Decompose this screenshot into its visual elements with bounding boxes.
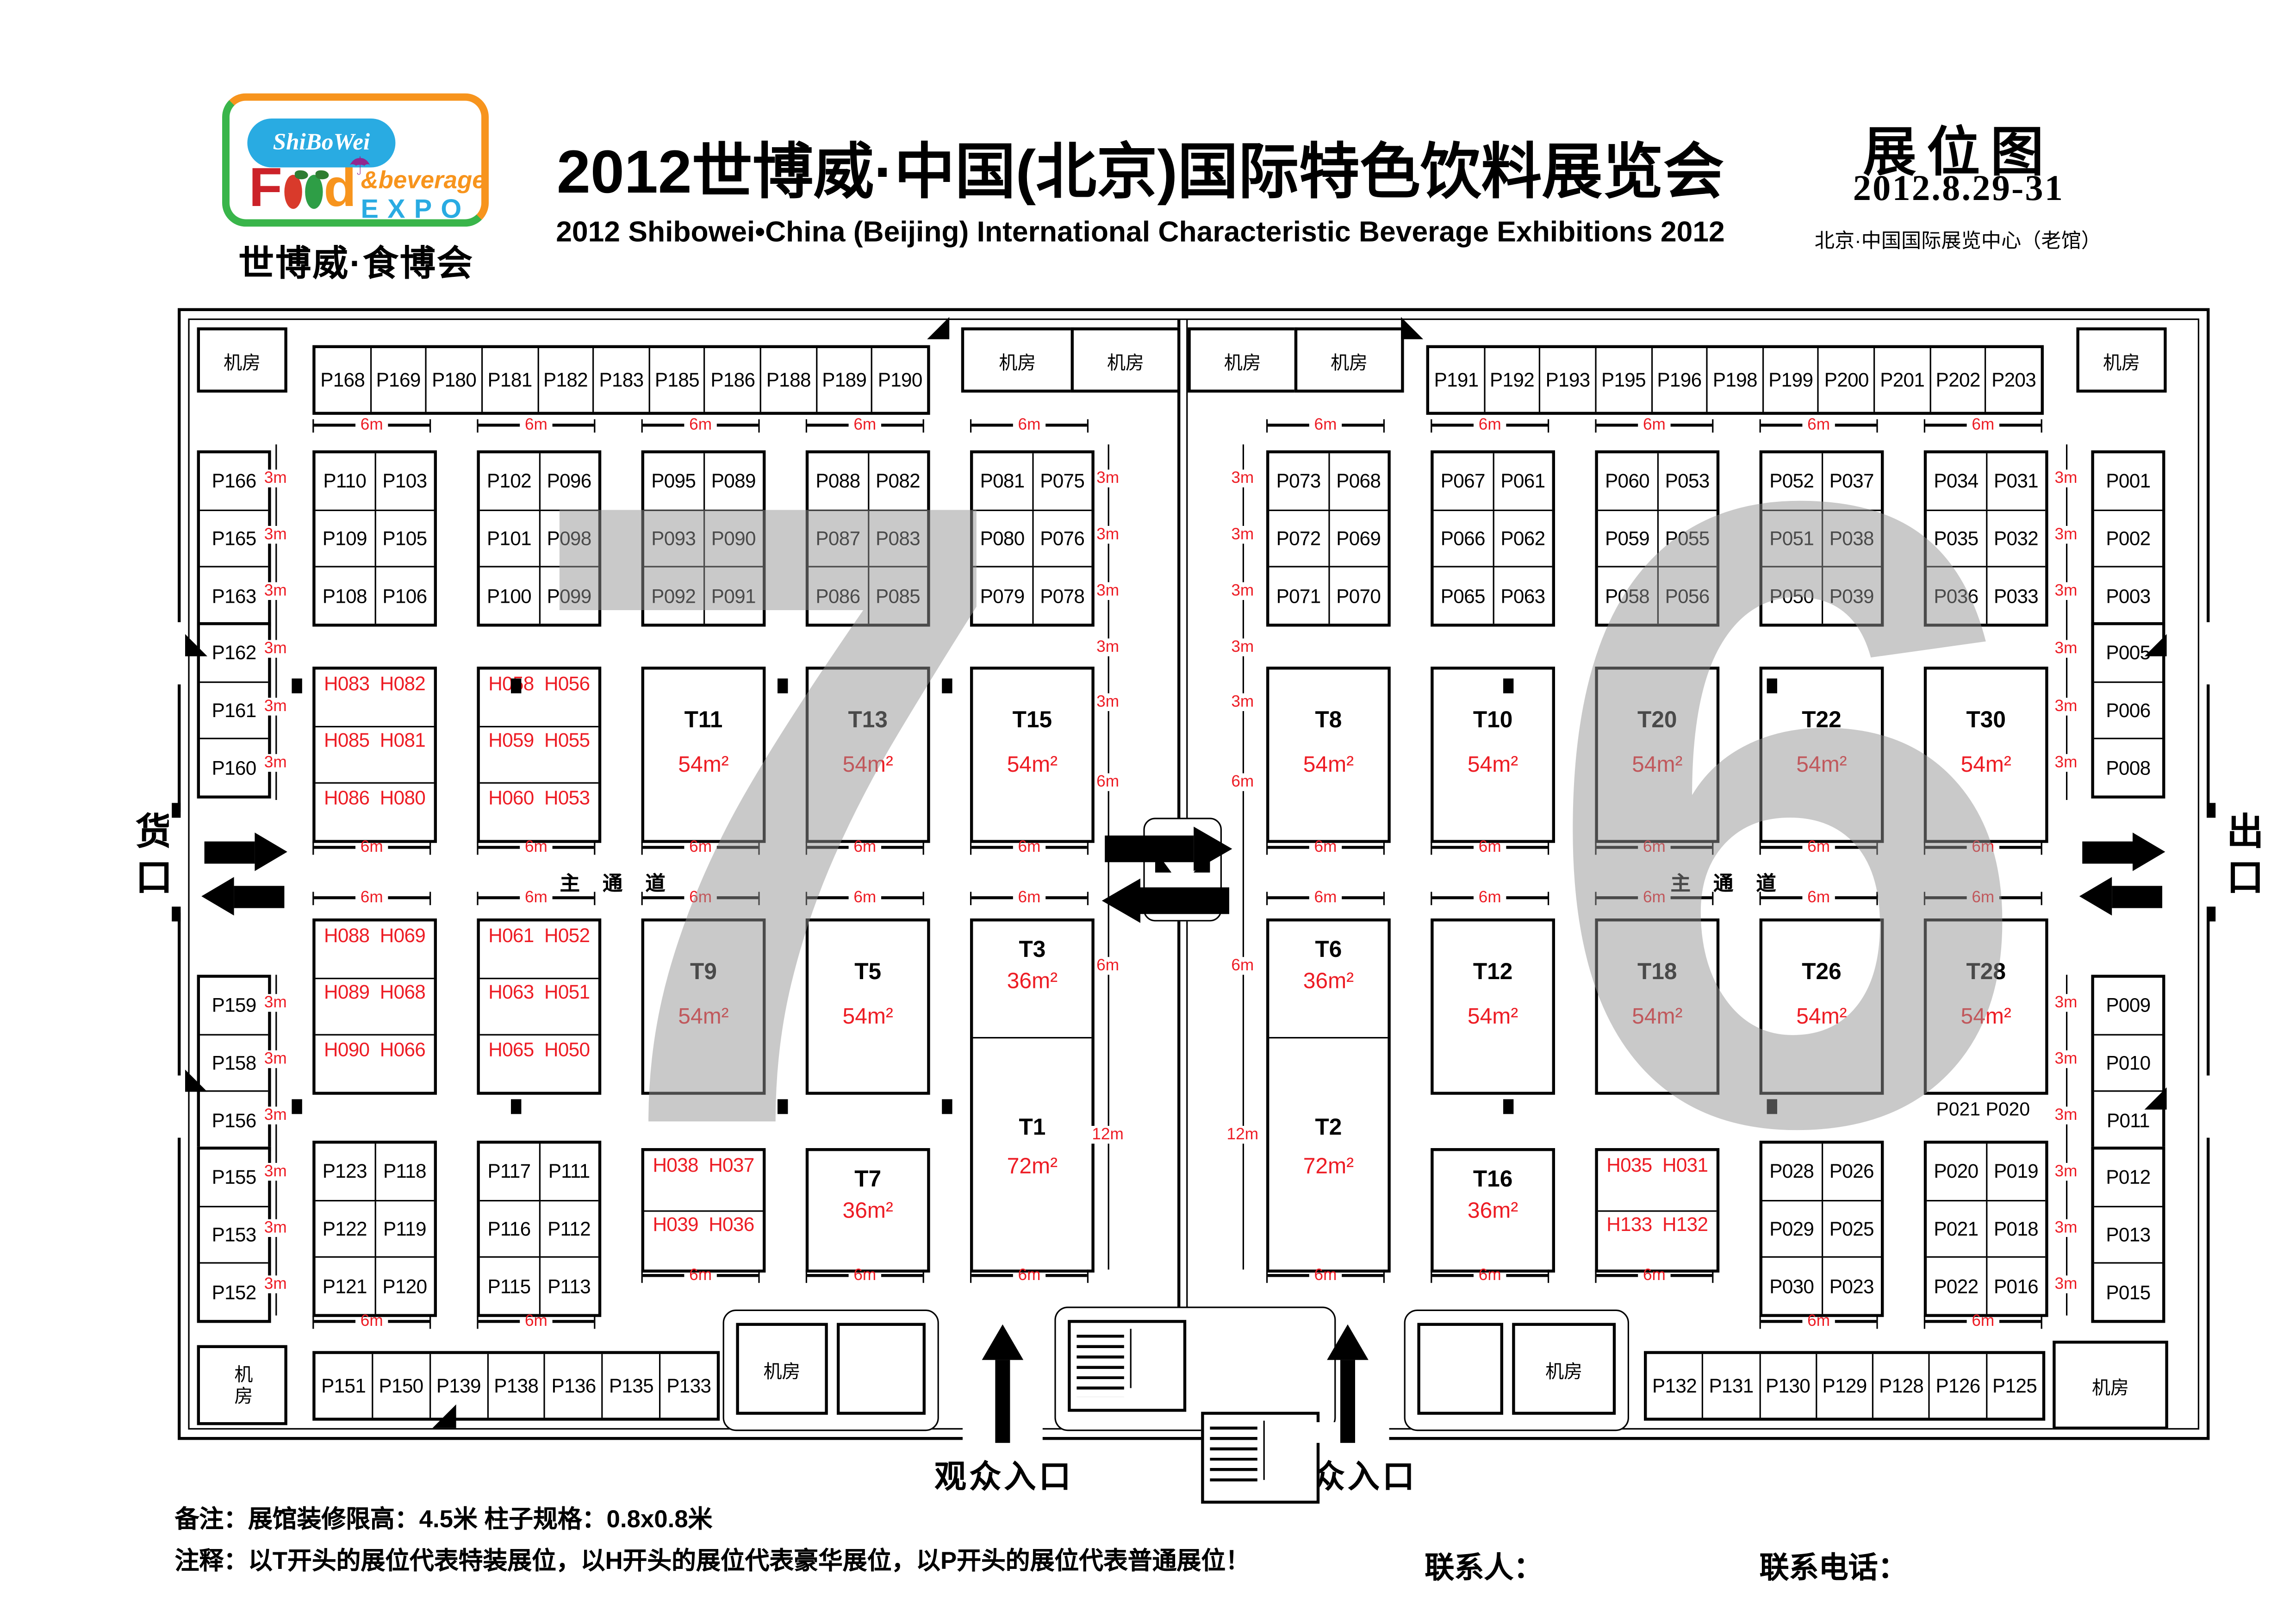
booth-P089: P089 bbox=[703, 453, 763, 509]
exit-arrow-icon bbox=[2082, 832, 2165, 871]
dim-label-m3: 3m bbox=[263, 640, 288, 657]
booth-special-block: T1254m² bbox=[1431, 918, 1555, 1095]
center-wall-line bbox=[1186, 921, 1188, 1342]
side-booth-group: P162P161P160 bbox=[197, 622, 271, 799]
pillar-column bbox=[1503, 679, 1513, 693]
booth-special-block: T954m² bbox=[641, 918, 766, 1095]
booth-P180: P180 bbox=[425, 348, 481, 412]
booth-P102: P102 bbox=[480, 453, 538, 509]
booth-P026: P026 bbox=[1821, 1143, 1881, 1199]
exit-in-arrow-icon bbox=[2079, 877, 2162, 915]
dim-label-m3: 3m bbox=[2053, 1050, 2078, 1068]
booth-P061: P061 bbox=[1492, 453, 1552, 509]
side-booth-group: P001P002P003 bbox=[2091, 450, 2165, 627]
dim-label-m12: 12m bbox=[1090, 1126, 1125, 1143]
booth-P080: P080 bbox=[973, 511, 1031, 567]
booth-P182: P182 bbox=[537, 348, 592, 412]
booth-pair-grid: P020P019P021P018P022P016 bbox=[1924, 1141, 2048, 1317]
booth-P009: P009 bbox=[2094, 978, 2162, 1034]
booth-special-block: T1054m² bbox=[1431, 667, 1555, 843]
booth-P201: P201 bbox=[1873, 348, 1929, 412]
booth-pair-grid: P052P037P051P038P050P039 bbox=[1760, 450, 1884, 627]
dim-label-6m: 6m bbox=[970, 1267, 1089, 1284]
dim-label-6m: 6m bbox=[1431, 838, 1549, 856]
center-wall-line bbox=[1178, 319, 1180, 818]
booth-P003: P003 bbox=[2094, 568, 2162, 624]
booth-special-block: T336m²T172m² bbox=[970, 918, 1095, 1273]
dim-label-m3: 3m bbox=[2053, 698, 2078, 715]
booth-pair-grid: P067P061P066P062P065P063 bbox=[1431, 450, 1555, 627]
dim-label-m3: 3m bbox=[1095, 693, 1120, 711]
dim-label-6m: 6m bbox=[477, 416, 595, 434]
booth-P196: P196 bbox=[1651, 348, 1706, 412]
booth-T20: T2054m² bbox=[1598, 669, 1717, 834]
booth-P198: P198 bbox=[1706, 348, 1762, 412]
dim-label-6m: 6m bbox=[1595, 838, 1713, 856]
booth-deluxe-block: H038H037H039H036 bbox=[641, 1148, 766, 1273]
booth-H080: H080 bbox=[380, 787, 425, 840]
booth-H051: H051 bbox=[544, 981, 590, 1035]
stairs-icon bbox=[1201, 1412, 1319, 1504]
booth-P135: P135 bbox=[602, 1354, 659, 1418]
booth-H055: H055 bbox=[544, 729, 590, 783]
booth-P088: P088 bbox=[809, 453, 867, 509]
dim-label-6m: 6m bbox=[1760, 416, 1878, 434]
booth-P161: P161 bbox=[200, 682, 268, 738]
dim-label-6m: 6m bbox=[1266, 838, 1385, 856]
side-booth-group: P009P010P011 bbox=[2091, 975, 2165, 1151]
top-booth-row-right: P191P192P193P195P196P198P199P200P201P202… bbox=[1426, 345, 2044, 415]
booth-P081: P081 bbox=[973, 453, 1031, 509]
booth-P033: P033 bbox=[1985, 568, 2046, 624]
machine-room: 机房 bbox=[1512, 1323, 1616, 1415]
cargo-out-arrow-icon bbox=[201, 877, 284, 915]
booth-special-block: T736m² bbox=[806, 1148, 930, 1273]
dim-label-m3: 3m bbox=[263, 1163, 288, 1181]
dim-label-6m: 6m bbox=[1760, 1312, 1878, 1330]
booth-pair-grid: P034P031P035P032P036P033 bbox=[1924, 450, 2048, 627]
note-line2: 注释：以T开头的展位代表特装展位，以H开头的展位代表豪华展位，以P开头的展位代表… bbox=[175, 1541, 1250, 1576]
dim-label-m3: 3m bbox=[263, 698, 288, 715]
booth-P069: P069 bbox=[1328, 511, 1388, 567]
dim-label-m3: 3m bbox=[263, 1219, 288, 1237]
dim-label-6m: 6m bbox=[970, 838, 1089, 856]
booth-P068: P068 bbox=[1328, 453, 1388, 509]
dim-label-m3: 3m bbox=[1230, 526, 1255, 543]
contact-person-label: 联系人： bbox=[1425, 1543, 1543, 1587]
booth-T16: T1636m² bbox=[1434, 1151, 1552, 1263]
booth-P070: P070 bbox=[1328, 568, 1388, 624]
booth-pair-grid: P088P082P087P083P086P085 bbox=[806, 450, 930, 627]
dim-label-6m: 6m bbox=[477, 1312, 595, 1330]
dim-line bbox=[2065, 444, 2067, 800]
booth-pair-grid: P102P096P101P098P100P099 bbox=[477, 450, 601, 627]
booth-T11: T1154m² bbox=[644, 669, 763, 834]
booth-deluxe-block: H061H052H063H051H065H050 bbox=[477, 918, 601, 1095]
dim-label-6m: 6m bbox=[312, 1312, 431, 1330]
booth-P006: P006 bbox=[2094, 682, 2162, 738]
booth-P100: P100 bbox=[480, 568, 538, 624]
dim-label-6m: 6m bbox=[641, 416, 760, 434]
booth-special-block: T3054m² bbox=[1924, 667, 2048, 843]
door-swing-icon bbox=[1401, 317, 1423, 339]
booth-special-block: T636m²T272m² bbox=[1266, 918, 1391, 1273]
booth-P158: P158 bbox=[200, 1035, 268, 1091]
dim-label-m3: 3m bbox=[1095, 469, 1120, 487]
dim-label-6m: 6m bbox=[970, 416, 1089, 434]
booth-P112: P112 bbox=[538, 1201, 598, 1257]
booth-P101: P101 bbox=[480, 511, 538, 567]
booth-P095: P095 bbox=[644, 453, 703, 509]
booth-H088: H088 bbox=[324, 924, 369, 977]
top-booth-row-left: P168P169P180P181P182P183P185P186P188P189… bbox=[312, 345, 930, 415]
dim-label-m3: 3m bbox=[2053, 754, 2078, 772]
machine-room-unit: 机房 bbox=[1404, 1310, 1629, 1431]
booth-P050: P050 bbox=[1762, 568, 1821, 624]
side-booth-group: P166P165P163 bbox=[197, 450, 271, 627]
booth-P120: P120 bbox=[374, 1258, 434, 1314]
booth-P091: P091 bbox=[703, 568, 763, 624]
door-swing-icon bbox=[2145, 634, 2167, 656]
booth-P013: P013 bbox=[2094, 1207, 2162, 1263]
booth-P025: P025 bbox=[1821, 1201, 1881, 1257]
booth-deluxe-block: H083H082H085H081H086H080 bbox=[312, 667, 437, 843]
dim-label-6m: 6m bbox=[1760, 889, 1878, 906]
booth-P016: P016 bbox=[1985, 1258, 2046, 1314]
cargo-in-arrow-icon bbox=[205, 832, 287, 871]
booth-P053: P053 bbox=[1656, 453, 1717, 509]
dim-label-m3: 3m bbox=[263, 582, 288, 600]
booth-T26: T2654m² bbox=[1762, 921, 1881, 1086]
booth-deluxe-block: H035H031H133H132 bbox=[1595, 1148, 1719, 1273]
booth-P021: P021 bbox=[1927, 1201, 1985, 1257]
hall-link-arrow-left-icon bbox=[1102, 879, 1229, 923]
booth-P155: P155 bbox=[200, 1149, 268, 1206]
dim-label-6m: 6m bbox=[1266, 416, 1385, 434]
hall-link-arrow-right-icon bbox=[1105, 827, 1232, 871]
dim-label-m3: 3m bbox=[2053, 1275, 2078, 1293]
booth-pair-grid: P081P075P080P076P079P078 bbox=[970, 450, 1095, 627]
booth-H083: H083 bbox=[324, 672, 369, 725]
dim-label-m3: 3m bbox=[1095, 582, 1120, 600]
booth-P117: P117 bbox=[480, 1143, 538, 1199]
center-wall-line bbox=[1186, 319, 1188, 818]
booth-P075: P075 bbox=[1032, 453, 1092, 509]
dim-label-m3: 3m bbox=[2053, 994, 2078, 1012]
dim-label-m6: 6m bbox=[1095, 773, 1120, 791]
booth-P071: P071 bbox=[1269, 568, 1327, 624]
booth-T10: T1054m² bbox=[1434, 669, 1552, 834]
booth-P200: P200 bbox=[1818, 348, 1873, 412]
machine-room: 机房 bbox=[736, 1323, 828, 1415]
booth-P034: P034 bbox=[1927, 453, 1985, 509]
booth-special-block: T1354m² bbox=[806, 667, 930, 843]
booth-H061: H061 bbox=[488, 924, 534, 977]
booth-T2: T272m² bbox=[1269, 1037, 1388, 1262]
pillar-column bbox=[778, 1099, 788, 1114]
dim-label-m3: 3m bbox=[263, 1106, 288, 1124]
booth-P035: P035 bbox=[1927, 511, 1985, 567]
booth-special-block: T1854m² bbox=[1595, 918, 1719, 1095]
booth-H056: H056 bbox=[544, 672, 590, 725]
dim-label-m6: 6m bbox=[1230, 773, 1255, 791]
booth-P031: P031 bbox=[1985, 453, 2046, 509]
booth-P199: P199 bbox=[1762, 348, 1818, 412]
dim-label-6m: 6m bbox=[806, 889, 924, 906]
dim-label-m3: 3m bbox=[263, 1275, 288, 1293]
booth-P166: P166 bbox=[200, 453, 268, 509]
door-swing-icon bbox=[2145, 1087, 2167, 1110]
booth-P096: P096 bbox=[538, 453, 598, 509]
booth-P128: P128 bbox=[1872, 1354, 1929, 1418]
booth-pair-grid: P073P068P072P069P071P070 bbox=[1266, 450, 1391, 627]
dim-label-6m: 6m bbox=[1924, 889, 2042, 906]
dim-label-6m: 6m bbox=[1924, 1312, 2042, 1330]
booth-H031: H031 bbox=[1662, 1153, 1708, 1210]
booth-P051: P051 bbox=[1762, 511, 1821, 567]
bottom-booth-row-right: P132P131P130P129P128P126P125 bbox=[1644, 1351, 2045, 1420]
booth-P109: P109 bbox=[316, 511, 374, 567]
dim-line bbox=[275, 444, 277, 800]
booth-P015: P015 bbox=[2094, 1264, 2162, 1320]
booth-P073: P073 bbox=[1269, 453, 1327, 509]
booth-P001: P001 bbox=[2094, 453, 2162, 509]
booth-H063: H063 bbox=[488, 981, 534, 1035]
booth-P103: P103 bbox=[374, 453, 434, 509]
booth-special-block: T2054m² bbox=[1595, 667, 1719, 843]
booth-P010: P010 bbox=[2094, 1035, 2162, 1091]
booth-P136: P136 bbox=[544, 1354, 602, 1418]
booth-P063: P063 bbox=[1492, 568, 1552, 624]
booth-P160: P160 bbox=[200, 740, 268, 796]
machine-room-cell bbox=[837, 1323, 926, 1415]
booth-P159: P159 bbox=[200, 978, 268, 1034]
booth-special-block: T2654m² bbox=[1760, 918, 1884, 1095]
booth-P023: P023 bbox=[1821, 1258, 1881, 1314]
booth-P129: P129 bbox=[1816, 1354, 1873, 1418]
dim-label-6m: 6m bbox=[641, 1267, 760, 1284]
booth-P108: P108 bbox=[316, 568, 374, 624]
booth-P169: P169 bbox=[370, 348, 425, 412]
booth-H065: H065 bbox=[488, 1038, 534, 1092]
machine-room: 机房 bbox=[197, 1345, 287, 1425]
booth-pair-grid: P060P053P059P055P058P056 bbox=[1595, 450, 1719, 627]
booth-T12: T1254m² bbox=[1434, 921, 1552, 1086]
booth-T6: T636m² bbox=[1269, 921, 1388, 1037]
booth-special-block: T2254m² bbox=[1760, 667, 1884, 843]
door-swing-icon bbox=[927, 317, 949, 339]
dim-label-6m: 6m bbox=[1595, 416, 1713, 434]
booth-H066: H066 bbox=[380, 1038, 425, 1092]
booth-T1: T172m² bbox=[973, 1037, 1091, 1262]
booth-special-block: T554m² bbox=[806, 918, 930, 1095]
booth-P079: P079 bbox=[973, 568, 1031, 624]
dim-label-m3: 3m bbox=[2053, 1106, 2078, 1124]
booth-P066: P066 bbox=[1434, 511, 1492, 567]
visitor-entrance-arrow-icon bbox=[982, 1324, 1024, 1443]
dim-label-m3: 3m bbox=[2053, 582, 2078, 600]
booth-P133: P133 bbox=[660, 1354, 717, 1418]
booth-P038: P038 bbox=[1821, 511, 1881, 567]
door-swing-icon bbox=[432, 1405, 456, 1428]
booth-H132: H132 bbox=[1662, 1213, 1708, 1270]
dim-label-6m: 6m bbox=[806, 838, 924, 856]
booth-P126: P126 bbox=[1929, 1354, 1986, 1418]
booth-H089: H089 bbox=[324, 981, 369, 1035]
pillar-column bbox=[778, 679, 788, 693]
booth-P032: P032 bbox=[1985, 511, 2046, 567]
side-booth-group: P012P013P015 bbox=[2091, 1147, 2165, 1323]
booth-P116: P116 bbox=[480, 1201, 538, 1257]
booth-P189: P189 bbox=[815, 348, 871, 412]
floating-booth-label: P021 P020 bbox=[1924, 1098, 2042, 1120]
machine-room: 机房 bbox=[1071, 327, 1181, 393]
booth-P165: P165 bbox=[200, 511, 268, 567]
booth-T22: T2254m² bbox=[1762, 669, 1881, 834]
dim-label-6m: 6m bbox=[1924, 838, 2042, 856]
booth-T8: T854m² bbox=[1269, 669, 1388, 834]
booth-P099: P099 bbox=[538, 568, 598, 624]
booth-P131: P131 bbox=[1702, 1354, 1759, 1418]
booth-P098: P098 bbox=[538, 511, 598, 567]
center-wall-line bbox=[1178, 921, 1180, 1342]
booth-H060: H060 bbox=[488, 787, 534, 840]
booth-special-block: T1636m² bbox=[1431, 1148, 1555, 1273]
machine-room: 机房 bbox=[1188, 327, 1297, 393]
pillar-column bbox=[1767, 679, 1777, 693]
booth-P138: P138 bbox=[486, 1354, 544, 1418]
dim-label-m3: 3m bbox=[2053, 1163, 2078, 1181]
booth-P078: P078 bbox=[1032, 568, 1092, 624]
booth-P092: P092 bbox=[644, 568, 703, 624]
contact-phone-label: 联系电话： bbox=[1760, 1543, 1908, 1587]
exhibition-floor-plan: ShiBoWei F d☂ &beverage EXPO 世博威·食博会 201… bbox=[0, 0, 2296, 1624]
dim-label-6m: 6m bbox=[477, 889, 595, 906]
dim-label-m3: 3m bbox=[263, 469, 288, 487]
machine-room: 机房 bbox=[961, 327, 1074, 393]
dim-label-m3: 3m bbox=[263, 754, 288, 772]
booth-T13: T1354m² bbox=[809, 669, 927, 834]
dim-label-m3: 3m bbox=[263, 994, 288, 1012]
booth-P087: P087 bbox=[809, 511, 867, 567]
booth-pair-grid: P095P089P093P090P092P091 bbox=[641, 450, 766, 627]
note-line1: 备注：展馆装修限高：4.5米 柱子规格：0.8x0.8米 bbox=[175, 1499, 713, 1535]
booth-P030: P030 bbox=[1762, 1258, 1821, 1314]
booth-P153: P153 bbox=[200, 1207, 268, 1263]
booth-P062: P062 bbox=[1492, 511, 1552, 567]
dim-label-m3: 3m bbox=[1095, 526, 1120, 543]
booth-P152: P152 bbox=[200, 1264, 268, 1320]
booth-P029: P029 bbox=[1762, 1201, 1821, 1257]
booth-P056: P056 bbox=[1656, 568, 1717, 624]
booth-H085: H085 bbox=[324, 729, 369, 783]
booth-H037: H037 bbox=[709, 1153, 754, 1210]
booth-P083: P083 bbox=[867, 511, 927, 567]
dim-label-6m: 6m bbox=[477, 838, 595, 856]
booth-pair-grid: P123P118P122P119P121P120 bbox=[312, 1141, 437, 1317]
booth-P168: P168 bbox=[316, 348, 370, 412]
booth-P122: P122 bbox=[316, 1201, 374, 1257]
stairs-icon bbox=[1068, 1320, 1186, 1412]
booth-T28: T2854m² bbox=[1927, 921, 2045, 1086]
booth-pair-grid: P110P103P109P105P108P106 bbox=[312, 450, 437, 627]
dim-label-6m: 6m bbox=[1431, 416, 1549, 434]
booth-special-block: T2854m² bbox=[1924, 918, 2048, 1095]
booth-P183: P183 bbox=[593, 348, 648, 412]
door-swing-icon bbox=[185, 1069, 207, 1092]
booth-P012: P012 bbox=[2094, 1149, 2162, 1206]
booth-P039: P039 bbox=[1821, 568, 1881, 624]
booth-P121: P121 bbox=[316, 1258, 374, 1314]
booth-P163: P163 bbox=[200, 568, 268, 624]
dim-label-m3: 3m bbox=[1095, 638, 1120, 656]
dim-label-6m: 6m bbox=[312, 889, 431, 906]
machine-room-unit: 机房 bbox=[723, 1310, 939, 1431]
pillar-column bbox=[1503, 1099, 1513, 1114]
booth-P119: P119 bbox=[374, 1201, 434, 1257]
dim-label-m3: 3m bbox=[2053, 1219, 2078, 1237]
booth-P195: P195 bbox=[1595, 348, 1650, 412]
booth-P085: P085 bbox=[867, 568, 927, 624]
booth-H133: H133 bbox=[1606, 1213, 1652, 1270]
booth-P059: P059 bbox=[1598, 511, 1656, 567]
booth-P052: P052 bbox=[1762, 453, 1821, 509]
pillar-column bbox=[942, 1099, 952, 1114]
pillar-column bbox=[292, 679, 302, 693]
machine-room: 机房 bbox=[1294, 327, 1404, 393]
booth-P018: P018 bbox=[1985, 1201, 2046, 1257]
booth-H086: H086 bbox=[324, 787, 369, 840]
dim-label-6m: 6m bbox=[1760, 838, 1878, 856]
dim-label-6m: 6m bbox=[806, 416, 924, 434]
booth-P192: P192 bbox=[1483, 348, 1539, 412]
booth-pair-grid: P028P026P029P025P030P023 bbox=[1760, 1141, 1884, 1317]
booth-P111: P111 bbox=[538, 1143, 598, 1199]
booth-P125: P125 bbox=[1985, 1354, 2042, 1418]
dim-label-m3: 3m bbox=[2053, 526, 2078, 543]
dim-label-6m: 6m bbox=[806, 1267, 924, 1284]
booth-H090: H090 bbox=[324, 1038, 369, 1092]
booth-P181: P181 bbox=[481, 348, 537, 412]
booth-H082: H082 bbox=[380, 672, 425, 725]
booth-P190: P190 bbox=[871, 348, 927, 412]
dim-label-6m: 6m bbox=[970, 889, 1089, 906]
dim-label-6m: 6m bbox=[1924, 416, 2042, 434]
booth-P186: P186 bbox=[704, 348, 760, 412]
booth-deluxe-block: H088H069H089H068H090H066 bbox=[312, 918, 437, 1095]
booth-P193: P193 bbox=[1539, 348, 1595, 412]
booth-P118: P118 bbox=[374, 1143, 434, 1199]
booth-T9: T954m² bbox=[644, 921, 763, 1086]
side-booth-group: P159P158P156 bbox=[197, 975, 271, 1151]
booth-P132: P132 bbox=[1647, 1354, 1702, 1418]
dim-label-m6: 6m bbox=[1095, 957, 1120, 974]
booth-H053: H053 bbox=[544, 787, 590, 840]
dim-label-m3: 3m bbox=[2053, 469, 2078, 487]
booth-P162: P162 bbox=[200, 625, 268, 681]
visitor-entrance-arrow-icon bbox=[1327, 1324, 1369, 1443]
booth-H038: H038 bbox=[653, 1153, 698, 1210]
booth-H036: H036 bbox=[709, 1213, 754, 1270]
booth-T7: T736m² bbox=[809, 1151, 927, 1263]
booth-P055: P055 bbox=[1656, 511, 1717, 567]
booth-P019: P019 bbox=[1985, 1143, 2046, 1199]
machine-room: 机房 bbox=[197, 327, 287, 393]
pillar-column bbox=[292, 1099, 302, 1114]
dim-label-m3: 3m bbox=[263, 1050, 288, 1068]
booth-special-block: T1154m² bbox=[641, 667, 766, 843]
dim-label-m12: 12m bbox=[1225, 1126, 1260, 1143]
